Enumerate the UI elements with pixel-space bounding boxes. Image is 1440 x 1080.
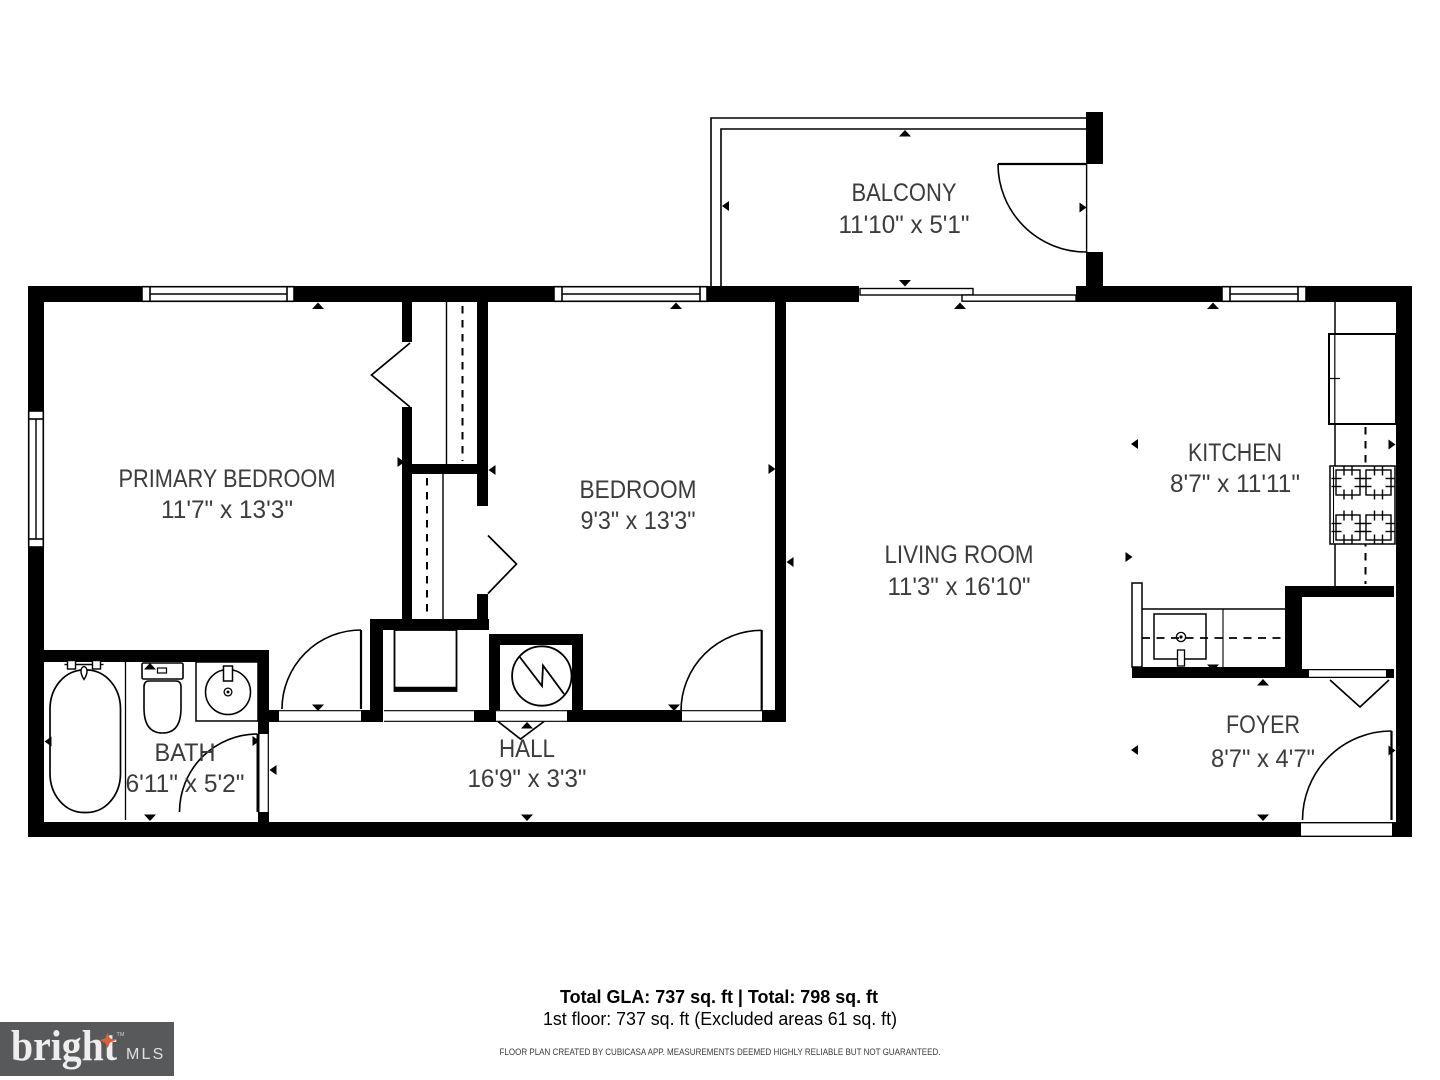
svg-text:MLS: MLS (126, 1046, 166, 1063)
svg-text:11'7" x 13'3": 11'7" x 13'3" (161, 496, 293, 524)
svg-text:BALCONY: BALCONY (852, 179, 957, 207)
svg-text:FLOOR PLAN CREATED BY CUBICASA: FLOOR PLAN CREATED BY CUBICASA APP. MEAS… (500, 1047, 941, 1057)
svg-text:11'3" x 16'10": 11'3" x 16'10" (888, 573, 1031, 601)
svg-text:FOYER: FOYER (1226, 711, 1300, 739)
svg-text:PRIMARY BEDROOM: PRIMARY BEDROOM (119, 465, 336, 493)
svg-text:LIVING ROOM: LIVING ROOM (885, 541, 1034, 569)
svg-text:16'9" x 3'3": 16'9" x 3'3" (468, 765, 587, 793)
svg-text:BEDROOM: BEDROOM (580, 476, 697, 504)
svg-text:6'11" x 5'2": 6'11" x 5'2" (126, 770, 245, 798)
svg-text:BATH: BATH (155, 739, 216, 767)
svg-text:8'7" x 4'7": 8'7" x 4'7" (1211, 745, 1315, 773)
svg-text:TM: TM (117, 1032, 125, 1038)
svg-text:9'3" x 13'3": 9'3" x 13'3" (581, 507, 696, 535)
svg-text:Total GLA: 737 sq. ft | Total:: Total GLA: 737 sq. ft | Total: 798 sq. f… (560, 987, 878, 1007)
svg-text:bright: bright (11, 1023, 118, 1070)
svg-text:8'7" x 11'11": 8'7" x 11'11" (1170, 470, 1300, 498)
svg-text:KITCHEN: KITCHEN (1188, 439, 1282, 467)
svg-text:1st floor: 737 sq. ft (Exclude: 1st floor: 737 sq. ft (Excluded areas 61… (543, 1009, 897, 1029)
svg-text:11'10" x 5'1": 11'10" x 5'1" (839, 211, 970, 239)
svg-text:HALL: HALL (499, 735, 555, 763)
